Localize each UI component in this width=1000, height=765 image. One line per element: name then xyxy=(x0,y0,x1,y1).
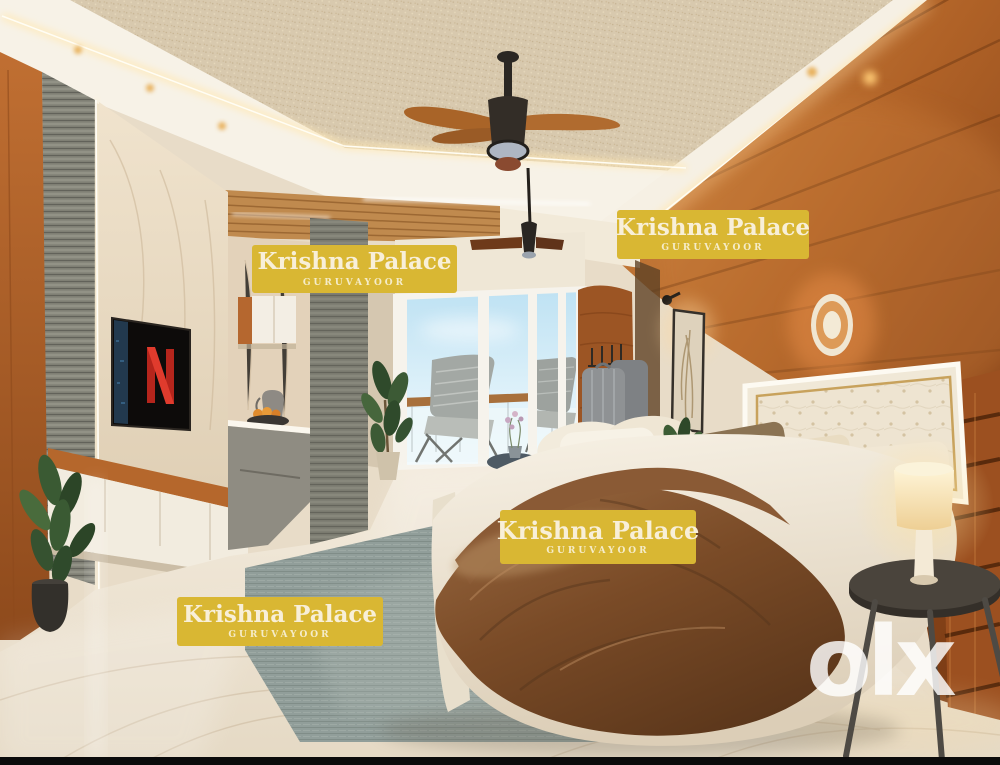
art-frame xyxy=(672,310,704,432)
watermark-title: Krishna Palace xyxy=(183,603,377,627)
wall-lamp xyxy=(788,273,876,377)
cabinet-wood-side xyxy=(238,297,252,344)
base-cabinet xyxy=(228,426,312,550)
olx-logo: olx xyxy=(806,614,952,710)
watermark: Krishna Palace GURUVAYOOR xyxy=(252,245,457,293)
watermark-subtitle: GURUVAYOOR xyxy=(546,546,649,556)
watermark-title: Krishna Palace xyxy=(497,518,699,543)
wall-art xyxy=(662,293,714,432)
watermark: Krishna Palace GURUVAYOOR xyxy=(500,510,696,564)
marble-wall xyxy=(99,102,228,489)
bottom-border xyxy=(0,757,1000,765)
watermark-subtitle: GURUVAYOOR xyxy=(303,278,406,288)
watermark-title: Krishna Palace xyxy=(258,250,452,274)
watermark: Krishna Palace GURUVAYOOR xyxy=(177,597,383,646)
tv-reflection xyxy=(114,320,128,424)
watermark-subtitle: GURUVAYOOR xyxy=(661,243,764,253)
plant-pot xyxy=(376,452,400,480)
spotlight xyxy=(662,295,672,305)
watermark-subtitle: GURUVAYOOR xyxy=(228,630,331,640)
watermark-title: Krishna Palace xyxy=(616,216,810,240)
room-photo: Krishna Palace GURUVAYOOR Krishna Palace… xyxy=(0,0,1000,765)
watermark: Krishna Palace GURUVAYOOR xyxy=(617,210,809,259)
